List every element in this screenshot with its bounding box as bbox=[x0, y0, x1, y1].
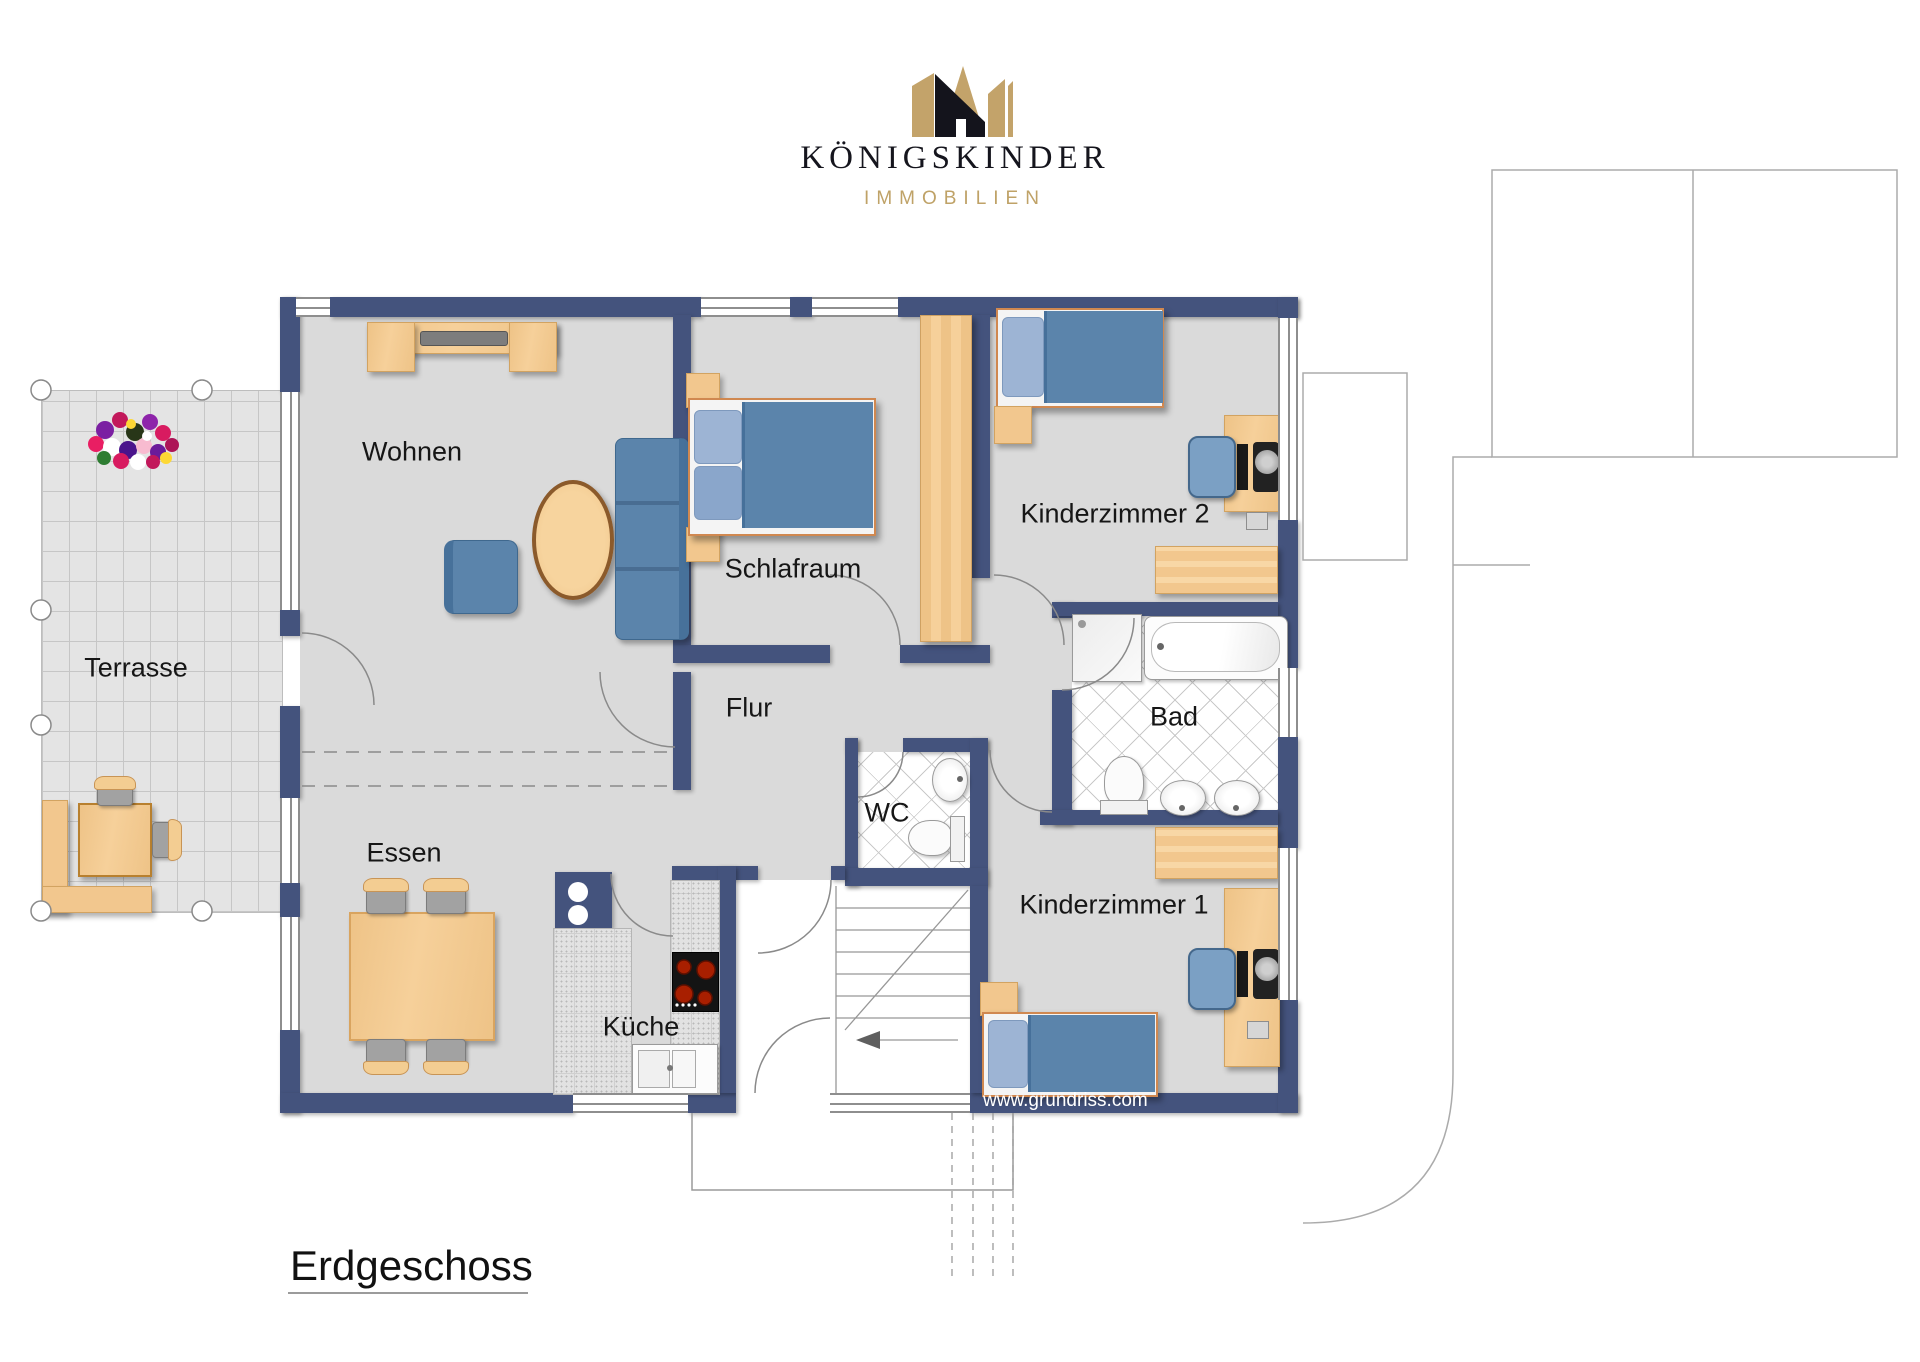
staircase-floor bbox=[736, 880, 970, 1093]
sofa bbox=[615, 438, 689, 640]
floor-title: Erdgeschoss bbox=[290, 1242, 533, 1290]
kitchen-corner-column bbox=[555, 872, 612, 928]
floorplan-page: KÖNIGSKINDER IMMOBILIEN bbox=[0, 0, 1920, 1362]
entrance-porch-outline bbox=[692, 1113, 1013, 1190]
room-label-essen: Essen bbox=[366, 838, 441, 869]
terrace-bench bbox=[42, 886, 152, 913]
wall-segment bbox=[972, 315, 990, 578]
shower bbox=[1072, 614, 1142, 682]
printer bbox=[1247, 1021, 1269, 1039]
terrace-chair-back bbox=[168, 819, 182, 861]
computer-disc bbox=[1255, 450, 1279, 474]
coffee-table-oval bbox=[532, 480, 614, 600]
faucet bbox=[1157, 643, 1164, 650]
wall-segment bbox=[1278, 737, 1298, 848]
shower-drain bbox=[1078, 620, 1086, 628]
room-label-flur: Flur bbox=[726, 693, 773, 724]
wall-segment bbox=[970, 738, 988, 886]
sink bbox=[932, 758, 968, 802]
wall-segment bbox=[900, 645, 990, 663]
wall-segment bbox=[736, 866, 758, 880]
wall-segment bbox=[280, 610, 300, 636]
computer-disc bbox=[1255, 957, 1279, 981]
toilet-tank bbox=[1100, 800, 1148, 815]
wall-segment bbox=[330, 297, 701, 317]
duvet bbox=[742, 402, 873, 528]
nightstand bbox=[980, 982, 1018, 1016]
pillow bbox=[694, 466, 742, 520]
dining-chair-back bbox=[423, 878, 469, 892]
tv-screen bbox=[420, 331, 508, 346]
wall-segment bbox=[280, 1093, 573, 1113]
wall-segment bbox=[718, 866, 736, 1093]
crown-house-icon bbox=[905, 62, 1015, 140]
single-bed bbox=[996, 308, 1164, 408]
window bbox=[812, 297, 898, 317]
window bbox=[573, 1093, 688, 1113]
window bbox=[701, 297, 790, 317]
logo-subtitle-text: IMMOBILIEN bbox=[655, 188, 1255, 210]
wall-segment bbox=[790, 297, 812, 317]
sink-basin bbox=[638, 1050, 670, 1088]
watermark-text: www.grundriss.com bbox=[983, 1090, 1148, 1112]
window bbox=[1278, 318, 1298, 390]
window bbox=[830, 1093, 970, 1113]
wall-segment bbox=[1052, 690, 1072, 825]
logo-brand-text: KÖNIGSKINDER bbox=[655, 140, 1255, 177]
wall-segment bbox=[831, 866, 845, 880]
window bbox=[280, 917, 300, 1030]
desk-chair bbox=[1188, 948, 1236, 1010]
porch-dashed-lines bbox=[952, 1113, 1013, 1278]
room-label-wc: WC bbox=[865, 798, 910, 829]
tv-sideboard-cabinet bbox=[367, 322, 415, 372]
wardrobe bbox=[920, 315, 972, 642]
wall-segment bbox=[280, 883, 300, 917]
wall-segment bbox=[1278, 1000, 1298, 1113]
window bbox=[280, 392, 300, 610]
terrace-table bbox=[78, 803, 152, 877]
wall-segment bbox=[280, 706, 300, 798]
room-label-bad: Bad bbox=[1150, 702, 1198, 733]
toilet bbox=[908, 820, 952, 856]
dining-chair-back bbox=[423, 1061, 469, 1075]
pillow bbox=[694, 410, 742, 464]
sideboard bbox=[1155, 546, 1278, 594]
bathtub bbox=[1144, 616, 1288, 680]
keyboard bbox=[1237, 951, 1248, 997]
room-label-kueche: Küche bbox=[603, 1012, 680, 1043]
sink bbox=[1214, 780, 1260, 816]
dining-chair-back bbox=[363, 878, 409, 892]
desk-chair bbox=[1188, 436, 1236, 498]
room-label-wohnen: Wohnen bbox=[362, 437, 462, 468]
floor-title-underline bbox=[288, 1292, 528, 1294]
wall-segment bbox=[673, 672, 691, 790]
keyboard bbox=[1237, 444, 1248, 490]
armchair bbox=[444, 540, 518, 614]
duvet bbox=[1044, 311, 1163, 403]
bathtub-basin bbox=[1151, 622, 1280, 672]
pillow bbox=[988, 1020, 1028, 1088]
room-label-kinderzimmer1: Kinderzimmer 1 bbox=[1019, 890, 1208, 921]
room-label-schlafraum: Schlafraum bbox=[725, 554, 862, 585]
kitchen-sink bbox=[632, 1044, 718, 1094]
toilet-tank bbox=[950, 816, 965, 862]
wall-segment bbox=[1278, 297, 1298, 318]
window bbox=[280, 798, 300, 883]
duvet bbox=[1028, 1015, 1155, 1092]
tv-sideboard-cabinet bbox=[509, 322, 557, 372]
window bbox=[1278, 668, 1298, 737]
single-bed bbox=[982, 1012, 1158, 1097]
cooktop bbox=[672, 952, 719, 1012]
toilet bbox=[1104, 756, 1144, 806]
wall-segment bbox=[673, 645, 830, 663]
sink bbox=[1160, 780, 1206, 816]
sideboard bbox=[1155, 827, 1278, 879]
window bbox=[296, 297, 330, 317]
wall-segment bbox=[845, 868, 988, 886]
neighbor-building-outline bbox=[1303, 170, 1897, 1223]
double-bed bbox=[688, 398, 876, 536]
room-label-kinderzimmer2: Kinderzimmer 2 bbox=[1020, 499, 1209, 530]
room-label-terrasse: Terrasse bbox=[84, 653, 188, 684]
printer bbox=[1246, 512, 1268, 530]
terrace-chair-back bbox=[94, 776, 136, 790]
faucet bbox=[667, 1065, 673, 1071]
nightstand bbox=[994, 406, 1032, 444]
window bbox=[1278, 390, 1298, 520]
dining-table bbox=[349, 912, 495, 1041]
wall-segment bbox=[845, 738, 858, 886]
pillow bbox=[1002, 317, 1044, 397]
wall-segment bbox=[688, 1093, 736, 1113]
dining-chair-back bbox=[363, 1061, 409, 1075]
window bbox=[1278, 848, 1298, 1000]
sink-basin bbox=[672, 1050, 696, 1088]
